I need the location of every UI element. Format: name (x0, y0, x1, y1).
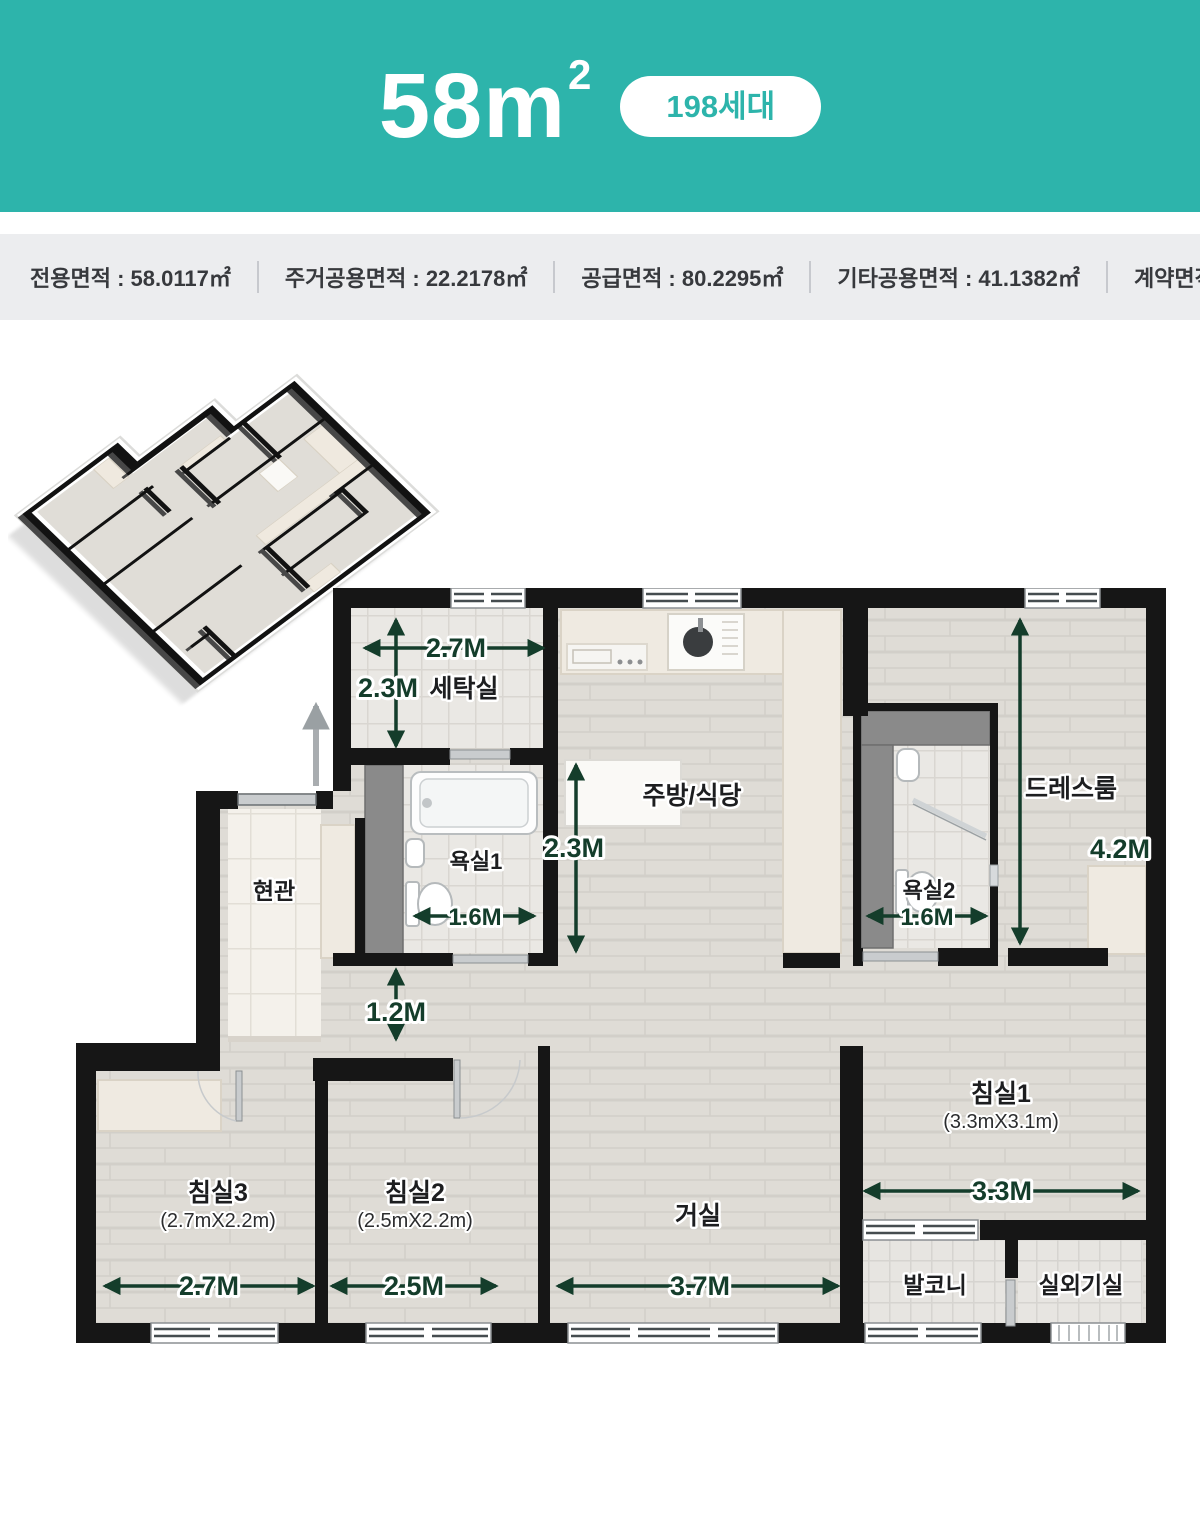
bed3-closet (98, 1080, 221, 1131)
svg-text:1.2M: 1.2M (366, 997, 426, 1027)
bath1-toilet (406, 882, 452, 926)
shaft-bath2-top (861, 711, 990, 745)
info-other-shared-area: 기타공용면적 : 41.1382㎡ (809, 261, 1106, 293)
bath2-door (990, 865, 998, 886)
svg-text:4.2M: 4.2M (1090, 834, 1150, 864)
room-label-laundry: 세탁실 (429, 675, 498, 703)
floorplan-2d: 2.7M 2.3M 2.3M 1.6M 1.6M 4.2M (70, 588, 1170, 1352)
room-label-bath1: 욕실1 (450, 849, 503, 874)
window-balcony-bottom (865, 1323, 981, 1343)
bed1-sliding-door (863, 952, 938, 961)
room-label-living: 거실 (675, 1202, 721, 1230)
vent-ac-room (1051, 1323, 1125, 1343)
svg-text:3.7M: 3.7M (670, 1271, 730, 1301)
bath1-sink (406, 839, 424, 867)
room-size-bed3: (2.7mX2.2m) (160, 1210, 276, 1232)
unit-size-superscript: 2 (568, 54, 592, 96)
window-laundry (451, 588, 525, 608)
area-info-bar: 전용면적 : 58.0117㎡ 주거공용면적 : 22.2178㎡ 공급면적 :… (0, 234, 1200, 320)
room-label-entrance: 현관 (253, 878, 295, 904)
kitchen-tall-cabinet (783, 610, 841, 953)
page: 58m2 198세대 전용면적 : 58.0117㎡ 주거공용면적 : 22.2… (0, 0, 1200, 1525)
info-shared-residential-area: 주거공용면적 : 22.2178㎡ (257, 261, 554, 293)
room-label-bath2: 욕실2 (903, 878, 956, 903)
room-size-bed1: (3.3mX3.1m) (943, 1111, 1059, 1133)
room-label-bed2: 침실2 (385, 1179, 445, 1207)
info-exclusive-area: 전용면적 : 58.0117㎡ (4, 261, 257, 293)
svg-text:2.3M: 2.3M (544, 833, 604, 863)
svg-text:2.3M: 2.3M (358, 673, 418, 703)
svg-text:2.7M: 2.7M (179, 1271, 239, 1301)
window-bed3 (151, 1323, 278, 1343)
room-label-dressroom: 드레스룸 (1025, 775, 1117, 803)
room-label-kitchen: 주방/식당 (643, 782, 742, 810)
room-label-bed3: 침실3 (188, 1179, 248, 1207)
svg-text:1.6M: 1.6M (900, 904, 953, 931)
room-label-balcony: 발코니 (903, 1272, 966, 1298)
kitchen-cooktop (567, 644, 647, 670)
svg-text:2.7M: 2.7M (426, 633, 486, 663)
window-bed1-balcony (863, 1220, 978, 1240)
bathtub (411, 772, 537, 834)
entrance-threshold (228, 1036, 321, 1042)
info-contract-area: 계약면적 : 121.3677㎡ (1106, 261, 1200, 293)
bath1-door (453, 955, 528, 963)
room-size-bed2: (2.5mX2.2m) (357, 1210, 473, 1232)
svg-text:1.6M: 1.6M (448, 904, 501, 931)
entrance-floor (228, 809, 321, 1038)
unit-size-value: 58m (379, 60, 566, 152)
laundry-sliding-door (450, 750, 510, 759)
balcony-divider-door (1006, 1280, 1015, 1326)
unit-size-title: 58m2 (379, 60, 593, 152)
room-label-bed1: 침실1 (971, 1080, 1031, 1108)
window-dressroom (1025, 588, 1100, 608)
info-supply-area: 공급면적 : 80.2295㎡ (553, 261, 809, 293)
window-kitchen (643, 588, 741, 608)
window-bed2 (366, 1323, 491, 1343)
bath2-sink (897, 749, 919, 781)
floorplan-svg: 2.7M 2.3M 2.3M 1.6M 1.6M 4.2M (70, 588, 1170, 1352)
dressroom-wardrobe (1088, 866, 1146, 954)
shaft-bath1 (365, 765, 403, 955)
room-label-ac-room: 실외기실 (1039, 1272, 1124, 1298)
svg-text:3.3M: 3.3M (972, 1176, 1032, 1206)
svg-text:2.5M: 2.5M (384, 1271, 444, 1301)
shoe-cabinet (321, 825, 355, 958)
household-count-badge: 198세대 (620, 76, 821, 137)
kitchen-sink (668, 614, 744, 670)
entrance-door (238, 794, 316, 805)
header: 58m2 198세대 (0, 0, 1200, 212)
window-living (568, 1323, 778, 1343)
